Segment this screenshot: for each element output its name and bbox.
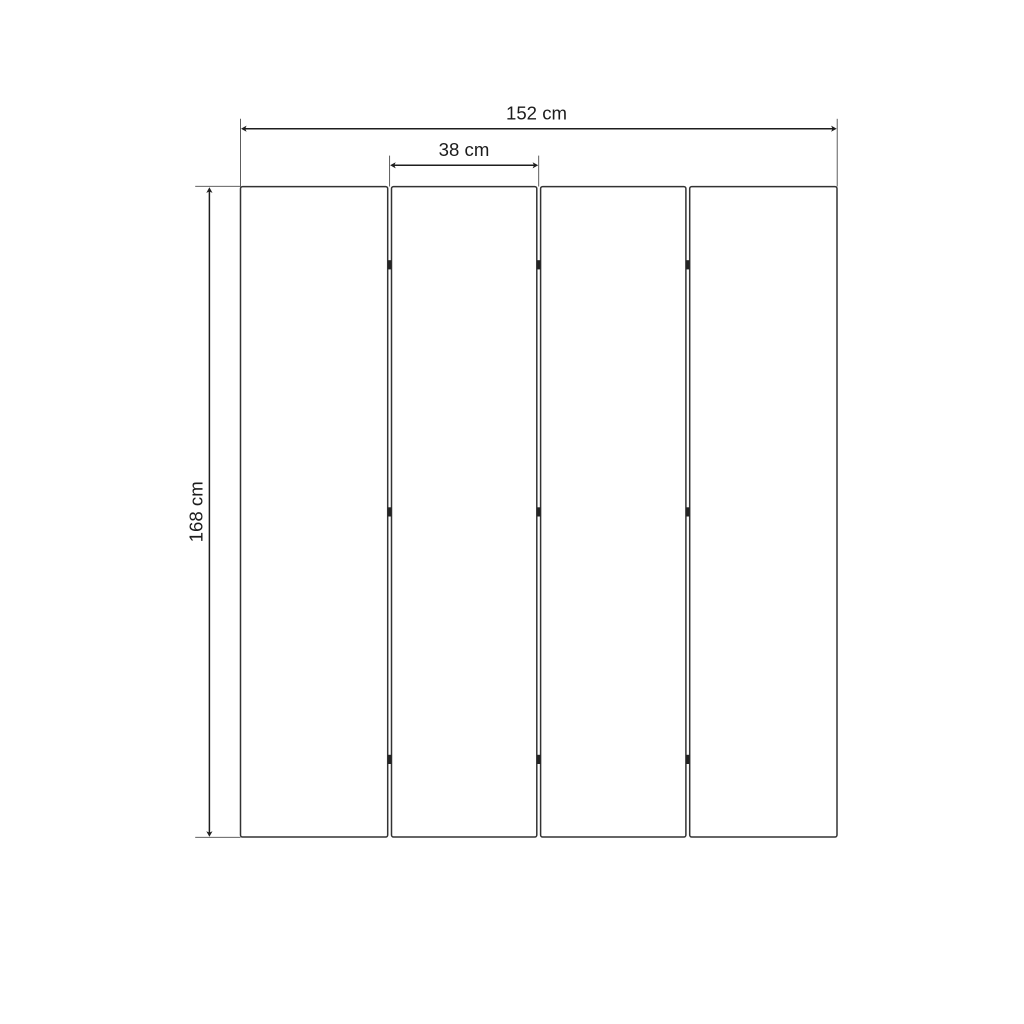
svg-text:152 cm: 152 cm: [506, 103, 567, 124]
svg-text:38 cm: 38 cm: [439, 139, 490, 160]
svg-text:168 cm: 168 cm: [185, 481, 206, 542]
